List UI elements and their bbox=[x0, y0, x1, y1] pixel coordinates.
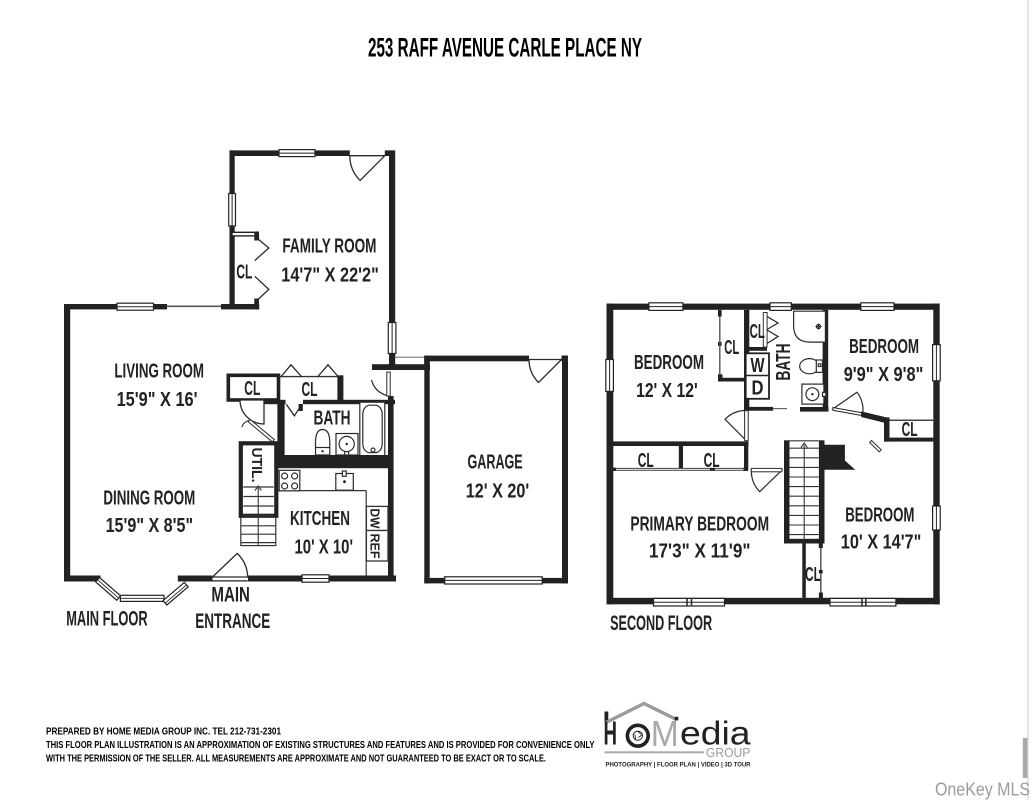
svg-text:BEDROOM: BEDROOM bbox=[634, 352, 704, 374]
svg-text:17'3" X 11'9": 17'3" X 11'9" bbox=[649, 541, 751, 563]
svg-text:CL: CL bbox=[244, 378, 260, 400]
svg-text:CL: CL bbox=[704, 450, 720, 472]
svg-text:15'9" X 16': 15'9" X 16' bbox=[117, 389, 198, 411]
svg-text:D: D bbox=[752, 377, 764, 399]
svg-text:10' X 10': 10' X 10' bbox=[295, 537, 354, 559]
svg-text:W: W bbox=[751, 355, 765, 377]
svg-text:15'9" X 8'5": 15'9" X 8'5" bbox=[106, 515, 194, 537]
svg-text:BATH: BATH bbox=[773, 344, 795, 381]
svg-text:PHOTOGRAPHY | FLOOR PLAN |: PHOTOGRAPHY | FLOOR PLAN | VIDEO | 3D TO… bbox=[606, 762, 751, 769]
svg-text:MAIN: MAIN bbox=[211, 583, 250, 607]
svg-text:CL: CL bbox=[638, 450, 654, 472]
svg-text:12' X 20': 12' X 20' bbox=[466, 481, 529, 503]
svg-text:PREPARED BY HOME MEDIA GROUP: PREPARED BY HOME MEDIA GROUP INC. TEL 21… bbox=[46, 725, 281, 737]
svg-text:253 RAFF AVENUE CARLE PLACE NY: 253 RAFF AVENUE CARLE PLACE NY bbox=[368, 33, 642, 63]
svg-text:REF: REF bbox=[368, 534, 382, 559]
svg-text:LIVING ROOM: LIVING ROOM bbox=[114, 361, 204, 383]
svg-text:WITH THE PERMISSION OF THE SEL: WITH THE PERMISSION OF THE SELLER. ALL M… bbox=[46, 753, 546, 765]
svg-text:14'7" X 22'2": 14'7" X 22'2" bbox=[281, 264, 379, 286]
svg-text:UTIL.: UTIL. bbox=[248, 448, 264, 483]
svg-text:10' X 14'7": 10' X 14'7" bbox=[841, 532, 922, 554]
svg-text:GARAGE: GARAGE bbox=[468, 451, 523, 473]
svg-text:SECOND FLOOR: SECOND FLOOR bbox=[610, 611, 712, 635]
svg-text:PRIMARY BEDROOM: PRIMARY BEDROOM bbox=[630, 514, 769, 536]
svg-text:DINING ROOM: DINING ROOM bbox=[103, 488, 195, 510]
svg-text:12' X 12': 12' X 12' bbox=[636, 380, 698, 402]
svg-text:OneKey MLS: OneKey MLS bbox=[935, 779, 1030, 800]
svg-text:KITCHEN: KITCHEN bbox=[290, 508, 350, 530]
svg-text:MAIN FLOOR: MAIN FLOOR bbox=[66, 607, 148, 631]
svg-text:BEDROOM: BEDROOM bbox=[845, 505, 914, 527]
svg-text:THIS FLOOR PLAN ILLUSTRATION I: THIS FLOOR PLAN ILLUSTRATION IS AN APPRO… bbox=[46, 739, 595, 751]
svg-text:CL: CL bbox=[805, 564, 821, 586]
svg-text:FAMILY ROOM: FAMILY ROOM bbox=[282, 236, 376, 258]
svg-text:ENTRANCE: ENTRANCE bbox=[195, 609, 270, 633]
svg-text:DW: DW bbox=[368, 509, 382, 529]
svg-text:BATH: BATH bbox=[314, 408, 351, 430]
svg-text:CL: CL bbox=[902, 419, 918, 441]
svg-text:GROUP: GROUP bbox=[706, 746, 751, 760]
svg-text:CL: CL bbox=[236, 262, 252, 284]
svg-text:CL: CL bbox=[302, 379, 318, 401]
svg-text:M: M bbox=[651, 713, 679, 754]
svg-text:BEDROOM: BEDROOM bbox=[849, 336, 919, 358]
svg-text:H: H bbox=[604, 715, 618, 752]
svg-text:CL: CL bbox=[750, 321, 765, 343]
svg-text:CL: CL bbox=[724, 337, 739, 359]
svg-text:9'9" X 9'8": 9'9" X 9'8" bbox=[844, 364, 924, 386]
